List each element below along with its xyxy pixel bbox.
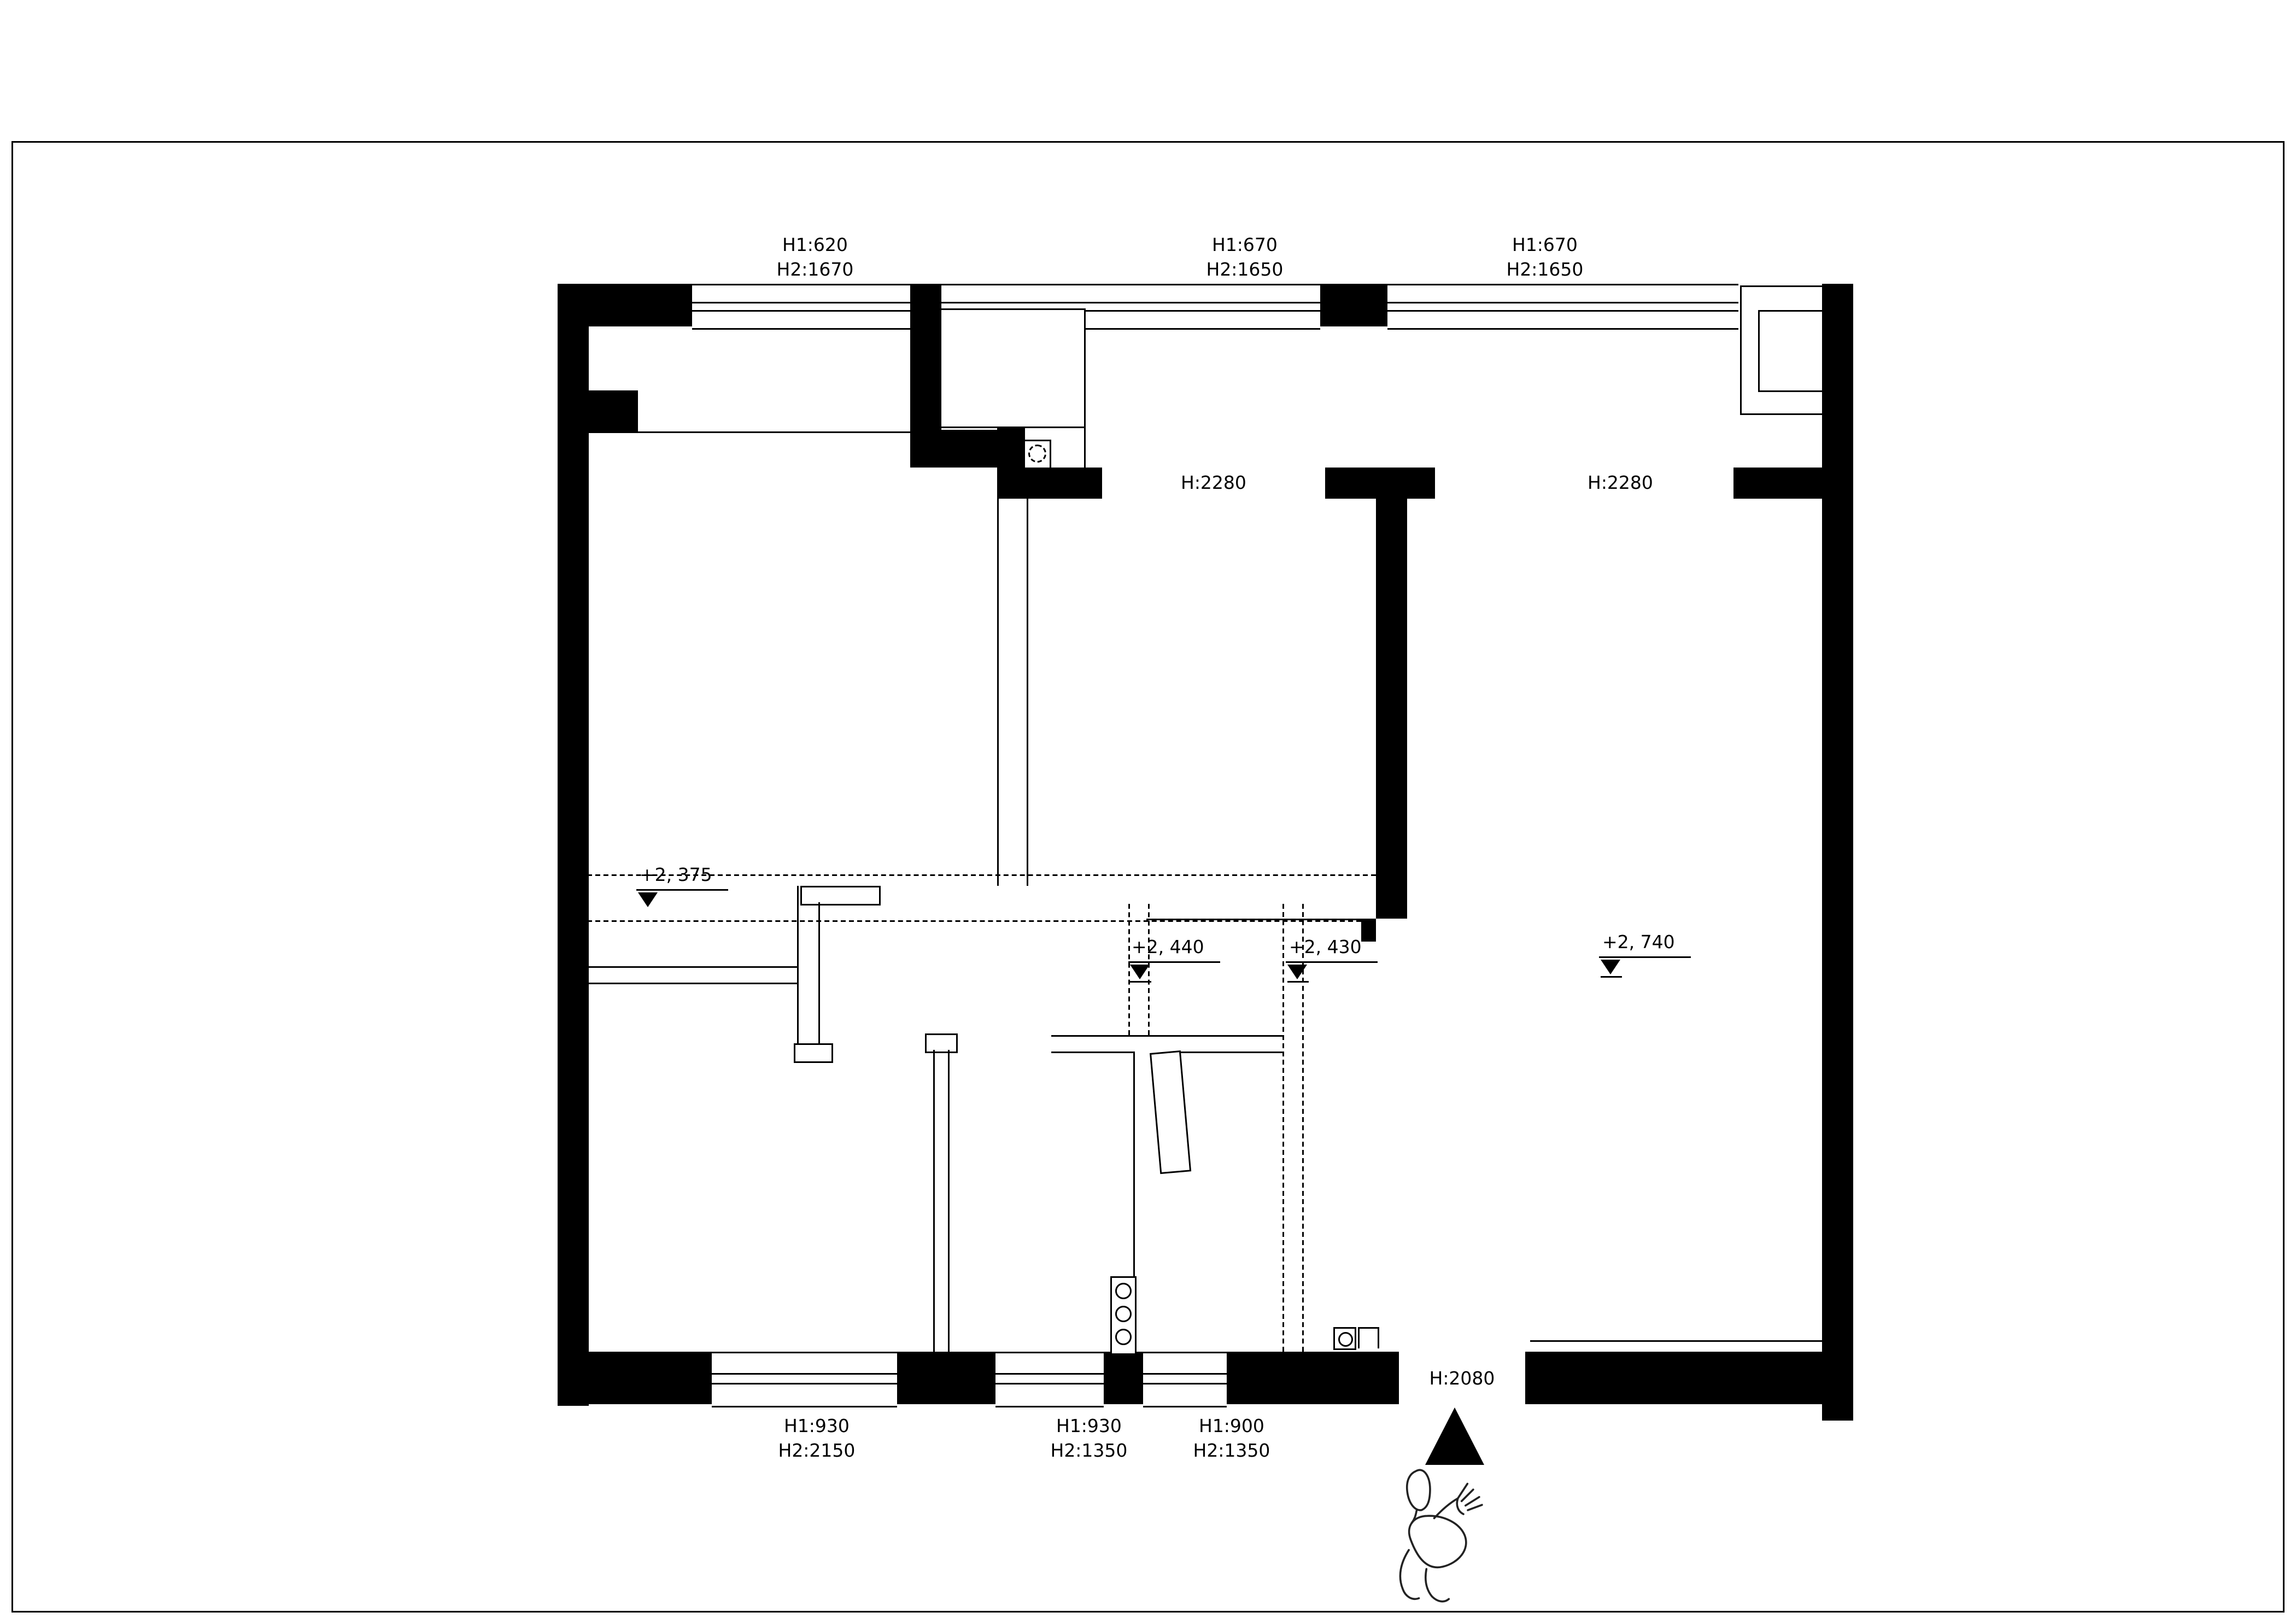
window-glass-line — [1143, 1383, 1227, 1385]
shaft-inner-box — [1758, 310, 1824, 392]
partition-p4-line-b — [1181, 1051, 1282, 1053]
corridor-wall-segment-c — [1733, 468, 1822, 499]
partition-p2-branch-top — [589, 966, 797, 968]
partition-p3-line-left — [933, 1050, 935, 1352]
h1-value: H1:930 — [727, 1414, 907, 1439]
level-line — [636, 889, 728, 891]
person-limb-left — [1396, 1550, 1419, 1601]
outlet-circle-icon — [1115, 1329, 1132, 1345]
level-triangle-icon — [1287, 965, 1307, 979]
partition-p2-line-right — [818, 902, 820, 1061]
drain-circle-icon — [1028, 445, 1046, 463]
h2-value: H2:2150 — [727, 1439, 907, 1463]
dashed-beam-line-lower — [587, 920, 1361, 922]
opening-height-label: H:2280 — [1588, 472, 1653, 494]
partition-p2-foot — [794, 1043, 833, 1063]
window-label-bottom-1: H1:930 H2:2150 — [727, 1414, 907, 1463]
niche-box — [940, 308, 1086, 428]
window-glass-line — [1387, 309, 1738, 311]
level-value: +2, 740 — [1602, 932, 1675, 953]
window-top-3 — [1387, 284, 1738, 330]
level-ground-line — [1601, 976, 1622, 978]
h2-value: H2:1650 — [1155, 258, 1335, 282]
window-label-bottom-3: H1:900 H2:1350 — [1141, 1414, 1322, 1463]
interior-wall-notch — [1361, 919, 1376, 942]
top-wall-segment-left — [558, 284, 692, 326]
doorbell-circle-icon — [1338, 1332, 1353, 1347]
dashed-zone-line-3 — [1282, 904, 1284, 1352]
window-label-top-3: H1:670 H2:1650 — [1455, 233, 1635, 282]
partition-p3-head — [925, 1033, 958, 1053]
entrance-opening: H:2080 — [1399, 1352, 1525, 1404]
person-arm — [1432, 1498, 1460, 1518]
window-glass-line — [941, 302, 1320, 303]
bedroom-top-line — [587, 431, 910, 433]
outlet-circle-icon — [1115, 1283, 1132, 1299]
left-wall-pier — [558, 390, 638, 431]
level-ground-line — [1130, 981, 1151, 983]
person-torso — [1407, 1511, 1469, 1571]
level-ground-line — [1287, 981, 1309, 983]
level-value: +2, 440 — [1132, 937, 1204, 958]
partition-p4-header-line — [1051, 1035, 1282, 1037]
level-triangle-icon — [1130, 965, 1150, 979]
level-value: +2, 430 — [1289, 937, 1362, 958]
h1-value: H1:670 — [1155, 233, 1335, 258]
window-glass-line — [692, 309, 910, 311]
outlet-circle-icon — [1115, 1306, 1132, 1322]
top-wall-pier-2 — [1320, 284, 1387, 326]
person-figure — [1378, 1457, 1506, 1615]
window-glass-line — [995, 1383, 1104, 1385]
partition-p4-line-a — [1051, 1051, 1133, 1053]
h1-value: H1:900 — [1141, 1414, 1322, 1439]
partition-p3-line-right — [948, 1050, 950, 1352]
level-line — [1128, 961, 1220, 963]
partition-p1-line-right — [1027, 499, 1028, 886]
h1-value: H1:620 — [725, 233, 905, 258]
partition-p2-top-nub — [800, 886, 881, 906]
outer-wall-right — [1822, 284, 1853, 1421]
person-limb-right — [1424, 1567, 1449, 1604]
level-line — [1599, 956, 1691, 958]
corridor-wall-segment-a — [997, 468, 1102, 499]
window-glass-line — [712, 1383, 897, 1385]
bottom-wall-segment-3 — [1525, 1352, 1822, 1404]
floor-plan-sheet: H:2280 H:2280 H:2080 — [0, 0, 2296, 1624]
partition-p2-line-left — [797, 886, 799, 1061]
h2-value: H2:1670 — [725, 258, 905, 282]
level-triangle-icon — [638, 892, 658, 907]
window-bottom-1 — [712, 1352, 897, 1407]
threshold-line — [1530, 1340, 1822, 1342]
window-glass-line — [995, 1373, 1104, 1375]
partition-p2-branch-bottom — [589, 983, 797, 984]
entrance-arrow-icon — [1425, 1407, 1484, 1465]
window-glass-line — [1143, 1373, 1227, 1375]
switch-symbol — [1358, 1327, 1379, 1348]
outer-wall-left — [558, 284, 589, 1406]
window-glass-line — [712, 1373, 897, 1375]
bottom-wall-pier-1 — [897, 1352, 995, 1404]
interior-opening-1: H:2280 — [1102, 468, 1325, 499]
interior-pier-stem — [910, 325, 941, 430]
person-head — [1404, 1469, 1433, 1511]
h1-value: H1:670 — [1455, 233, 1635, 258]
top-wall-pier-1 — [910, 284, 941, 326]
partition-p1-line-left — [997, 499, 999, 886]
interior-opening-2: H:2280 — [1435, 468, 1733, 499]
window-label-top-1: H1:620 H2:1670 — [725, 233, 905, 282]
level-triangle-icon — [1601, 960, 1620, 974]
window-glass-line — [692, 302, 910, 303]
bottom-wall-pier-2 — [1104, 1352, 1143, 1404]
window-top-1 — [692, 284, 910, 330]
bottom-wall-segment-2 — [1227, 1352, 1399, 1404]
interior-wall-vertical — [1376, 499, 1407, 919]
h2-value: H2:1650 — [1455, 258, 1635, 282]
corridor-wall-segment-b — [1325, 468, 1435, 499]
page-scaler: H:2280 H:2280 H:2080 — [0, 0, 2296, 1624]
window-bottom-3 — [1143, 1352, 1227, 1407]
level-line — [1286, 961, 1378, 963]
window-bottom-2 — [995, 1352, 1104, 1407]
window-glass-line — [1387, 302, 1738, 303]
level-value: +2, 375 — [640, 864, 712, 886]
niche-side-line — [1084, 427, 1086, 468]
h2-value: H2:1350 — [1141, 1439, 1322, 1463]
window-label-top-2: H1:670 H2:1650 — [1155, 233, 1335, 282]
bottom-wall-segment-1 — [558, 1352, 712, 1404]
person-hand-fingers — [1456, 1482, 1483, 1511]
entrance-height-label: H:2080 — [1430, 1368, 1495, 1389]
interior-wall-stub — [997, 427, 1025, 468]
opening-height-label: H:2280 — [1181, 472, 1246, 494]
